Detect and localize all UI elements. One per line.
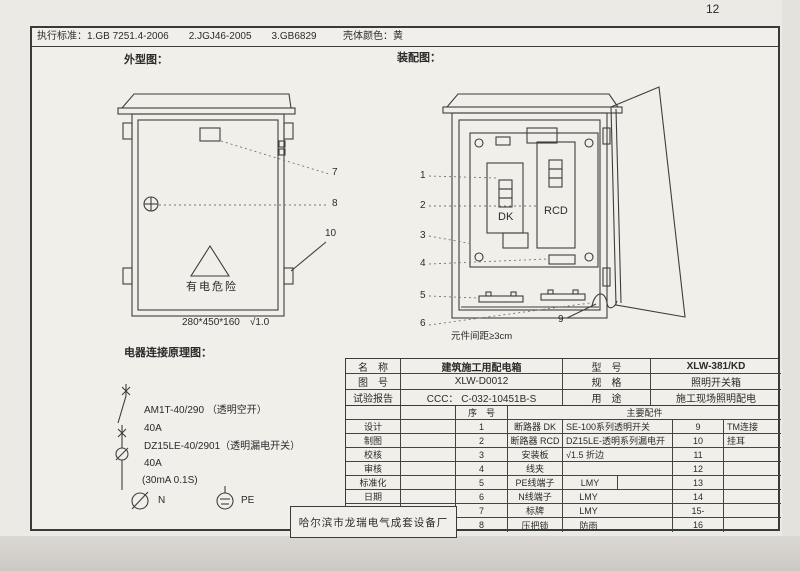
part-no: 16 xyxy=(673,518,724,532)
sign-label: 审核 xyxy=(346,462,401,476)
sign-label: 制图 xyxy=(346,434,401,448)
scanned-spec-sheet: { "page": { "number": "12" }, "header": … xyxy=(0,0,800,571)
sign-label: 设计 xyxy=(346,420,401,434)
cable xyxy=(592,294,617,308)
callout-7: 7 xyxy=(332,167,338,178)
seq-header: 序 号 xyxy=(456,406,508,420)
mounting-plate xyxy=(470,133,598,267)
sign-blank xyxy=(401,476,456,490)
info-label: 规 格 xyxy=(563,374,651,389)
info-value: XLW-381/KD xyxy=(651,359,781,374)
sign-label: 校核 xyxy=(346,448,401,462)
sign-label: 标准化 xyxy=(346,476,401,490)
assembly-title: 装配图： xyxy=(397,52,441,64)
part-no: 11 xyxy=(673,448,724,462)
info-label: 名 称 xyxy=(346,359,401,374)
callout-5: 5 xyxy=(420,290,426,301)
empty-cell xyxy=(346,406,401,420)
part-no: 1 xyxy=(456,420,508,434)
factory-name: 哈尔滨市龙瑞电气成套设备厂 xyxy=(299,515,449,530)
part-desc xyxy=(724,476,781,490)
empty-cell xyxy=(401,406,456,420)
info-value: 施工现场照明配电 xyxy=(651,390,781,405)
part-name: 断路器 DK xyxy=(508,420,563,434)
info-label: 试验报告 xyxy=(346,390,401,405)
part-desc: TM连接 xyxy=(724,420,781,434)
open-door xyxy=(611,87,685,317)
dk-breaker-label: DK xyxy=(498,211,513,223)
part-desc: LMY xyxy=(563,490,673,504)
wire-duct xyxy=(527,128,557,143)
rcd-breaker-label: RCD xyxy=(544,205,568,217)
breaker-rcd xyxy=(537,142,575,248)
part-name: N线端子 xyxy=(508,490,563,504)
part-desc xyxy=(724,490,781,504)
info-value: 照明开关箱 xyxy=(651,374,781,389)
info-label: 用 途 xyxy=(563,390,651,405)
part-no: 5 xyxy=(456,476,508,490)
part-name: 安装板 xyxy=(508,448,563,462)
part-desc xyxy=(724,448,781,462)
callout-4: 4 xyxy=(420,258,426,269)
part-desc: 防雨 xyxy=(563,518,673,532)
part-no: 2 xyxy=(456,434,508,448)
part-no: 6 xyxy=(456,490,508,504)
callout-10: 10 xyxy=(325,228,336,239)
mounting-ear xyxy=(123,268,132,284)
part-desc xyxy=(563,462,673,476)
info-value: XLW-D0012 xyxy=(401,374,563,389)
part-name: 标牌 xyxy=(508,504,563,518)
terminal-rail xyxy=(541,294,585,300)
schematic-line-5: (30mA 0.1S) xyxy=(142,475,198,486)
part-no: 7 xyxy=(456,504,508,518)
info-label: 型 号 xyxy=(563,359,651,374)
schematic-line-4: 40A xyxy=(144,458,162,469)
pe-earth-symbol xyxy=(217,493,233,509)
callout-1: 1 xyxy=(420,170,426,181)
callout-6: 6 xyxy=(420,318,426,329)
part-name: 断路器 RCD xyxy=(508,434,563,448)
pe-label: PE xyxy=(241,495,254,506)
part-no: 10 xyxy=(673,434,724,448)
part-no: 12 xyxy=(673,462,724,476)
mounting-ear xyxy=(123,123,132,139)
terminal-rail xyxy=(479,296,523,302)
part-no: 13 xyxy=(673,476,724,490)
part-name: PE线端子 xyxy=(508,476,563,490)
sign-blank xyxy=(401,462,456,476)
part-name: 压把锁 xyxy=(508,518,563,532)
part-no: 15- xyxy=(673,504,724,518)
part-no: 3 xyxy=(456,448,508,462)
part-desc: DZ15LE-透明系列漏电开 xyxy=(563,434,673,448)
part-no: 9 xyxy=(673,420,724,434)
part-no: 8 xyxy=(456,518,508,532)
part-desc: 挂耳 xyxy=(724,434,781,448)
sign-blank xyxy=(401,448,456,462)
part-desc xyxy=(724,518,781,532)
part-desc xyxy=(724,504,781,518)
factory-name-box: 哈尔滨市龙瑞电气成套设备厂 xyxy=(290,506,457,538)
breaker-blade xyxy=(118,396,126,423)
callout-9: 9 xyxy=(558,314,564,325)
mounting-ear xyxy=(284,123,293,139)
schematic-line-1: AM1T-40/290 （透明空开） xyxy=(144,405,267,416)
schematic-title: 电器连接原理图： xyxy=(124,347,212,359)
part-desc: LMY xyxy=(563,504,673,518)
exterior-leader-lines xyxy=(159,141,329,205)
part-desc: SE-100系列透明开关 xyxy=(563,420,673,434)
exterior-title: 外型图： xyxy=(124,54,168,66)
info-value: 建筑施工用配电箱 xyxy=(401,359,563,374)
callout-8: 8 xyxy=(332,198,338,209)
warning-text: 有电危险 xyxy=(186,281,238,293)
sign-blank xyxy=(401,434,456,448)
part-name: 线夹 xyxy=(508,462,563,476)
info-label: 图 号 xyxy=(346,374,401,389)
callout-2: 2 xyxy=(420,200,426,211)
parts-header: 主要配件 xyxy=(508,406,781,420)
callout-3: 3 xyxy=(420,230,426,241)
part-desc-blank xyxy=(618,476,673,490)
label-window xyxy=(200,128,220,141)
part-no: 14 xyxy=(673,490,724,504)
warning-triangle xyxy=(191,246,229,276)
sign-blank xyxy=(401,490,456,504)
spacing-note: 元件间距≥3cm xyxy=(451,332,512,342)
sign-label: 日期 xyxy=(346,490,401,504)
part-desc xyxy=(724,462,781,476)
assembly-view-drawing xyxy=(443,87,685,318)
part-desc: √1.5 折边 xyxy=(563,448,673,462)
schematic-line-3: DZ15LE-40/2901（透明漏电开关） xyxy=(144,441,300,452)
sign-blank xyxy=(401,420,456,434)
schematic-line-2: 40A xyxy=(144,423,162,434)
part-desc: LMY xyxy=(563,476,618,490)
part-no: 4 xyxy=(456,462,508,476)
title-block-info-table: 名 称 建筑施工用配电箱 型 号 XLW-381/KD 图 号 XLW-D001… xyxy=(345,358,780,405)
neutral-label: N xyxy=(158,495,165,506)
dimension-text: 280*450*160 √1.0 xyxy=(182,317,269,328)
info-value: CCC： C-032-10451B-S xyxy=(401,390,563,405)
